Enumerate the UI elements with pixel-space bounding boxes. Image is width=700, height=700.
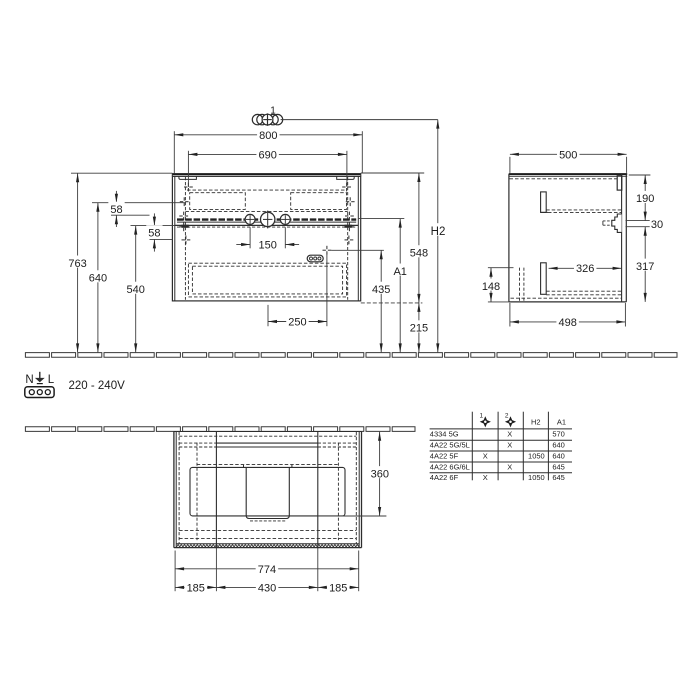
svg-text:X: X: [507, 430, 512, 439]
svg-text:4A22 5G/5L: 4A22 5G/5L: [430, 441, 470, 450]
svg-text:1050: 1050: [528, 451, 545, 460]
svg-text:X: X: [483, 451, 488, 460]
svg-text:58: 58: [148, 227, 160, 239]
svg-text:645: 645: [552, 462, 565, 471]
svg-text:2: 2: [505, 413, 509, 420]
svg-text:435: 435: [372, 284, 390, 296]
svg-text:570: 570: [552, 430, 565, 439]
svg-text:L: L: [48, 374, 55, 386]
svg-text:1050: 1050: [528, 473, 545, 482]
svg-text:185: 185: [187, 582, 205, 594]
svg-text:690: 690: [258, 149, 276, 161]
svg-text:58: 58: [110, 204, 122, 216]
svg-text:148: 148: [482, 281, 500, 293]
svg-text:X: X: [483, 473, 488, 482]
svg-text:H2: H2: [431, 226, 446, 238]
svg-text:X: X: [507, 441, 512, 450]
svg-text:190: 190: [636, 193, 654, 205]
svg-text:A1: A1: [393, 266, 406, 278]
svg-text:548: 548: [410, 247, 428, 259]
svg-text:498: 498: [558, 317, 576, 329]
svg-text:763: 763: [68, 258, 86, 270]
svg-text:360: 360: [371, 468, 389, 480]
svg-text:150: 150: [259, 239, 277, 251]
svg-text:640: 640: [89, 273, 107, 285]
svg-text:H2: H2: [531, 418, 541, 427]
svg-text:500: 500: [559, 149, 577, 161]
svg-text:30: 30: [651, 219, 663, 231]
svg-text:X: X: [507, 462, 512, 471]
svg-text:540: 540: [127, 284, 145, 296]
svg-text:645: 645: [552, 473, 565, 482]
svg-text:N: N: [25, 374, 33, 386]
svg-text:220 - 240V: 220 - 240V: [69, 380, 126, 392]
svg-text:A1: A1: [557, 417, 566, 426]
svg-text:317: 317: [636, 261, 654, 273]
svg-text:430: 430: [258, 582, 276, 594]
svg-text:774: 774: [258, 564, 276, 576]
svg-text:4A22 6G/6L: 4A22 6G/6L: [430, 462, 470, 471]
svg-text:4334 5G: 4334 5G: [430, 430, 459, 439]
svg-text:640: 640: [552, 451, 565, 460]
svg-text:215: 215: [410, 323, 428, 335]
svg-text:800: 800: [259, 130, 277, 142]
svg-text:185: 185: [329, 582, 347, 594]
svg-text:1: 1: [479, 413, 483, 420]
svg-text:4A22 5F: 4A22 5F: [430, 451, 459, 460]
svg-text:326: 326: [576, 263, 594, 275]
svg-text:4A22 6F: 4A22 6F: [430, 473, 459, 482]
svg-text:250: 250: [288, 316, 306, 328]
svg-text:640: 640: [552, 441, 565, 450]
